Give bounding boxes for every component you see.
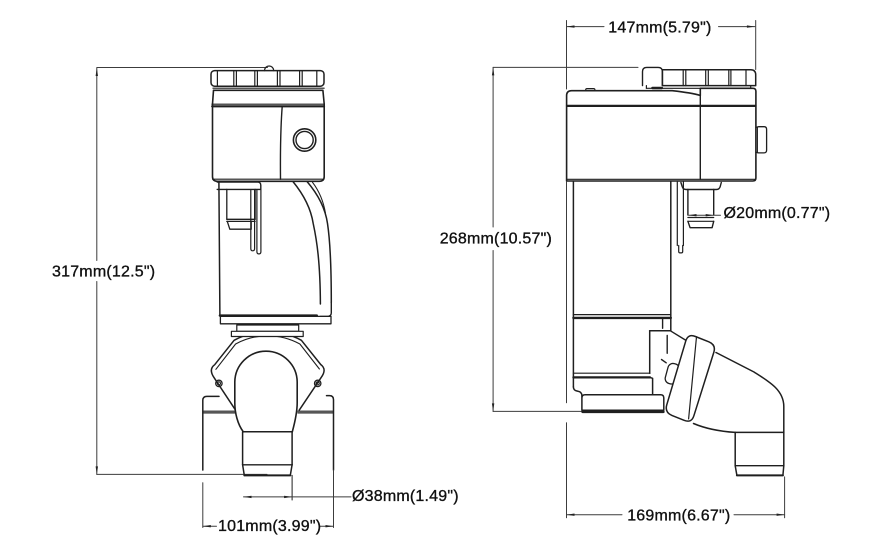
svg-text:101mm(3.99"): 101mm(3.99") <box>218 518 321 535</box>
svg-text:169mm(6.67"): 169mm(6.67") <box>627 508 730 525</box>
svg-text:Ø20mm(0.77"): Ø20mm(0.77") <box>724 205 831 222</box>
svg-text:268mm(10.57"): 268mm(10.57") <box>440 231 552 248</box>
svg-text:147mm(5.79"): 147mm(5.79") <box>608 19 711 36</box>
svg-text:317mm(12.5"): 317mm(12.5") <box>52 263 155 280</box>
svg-text:Ø38mm(1.49"): Ø38mm(1.49") <box>352 488 459 505</box>
